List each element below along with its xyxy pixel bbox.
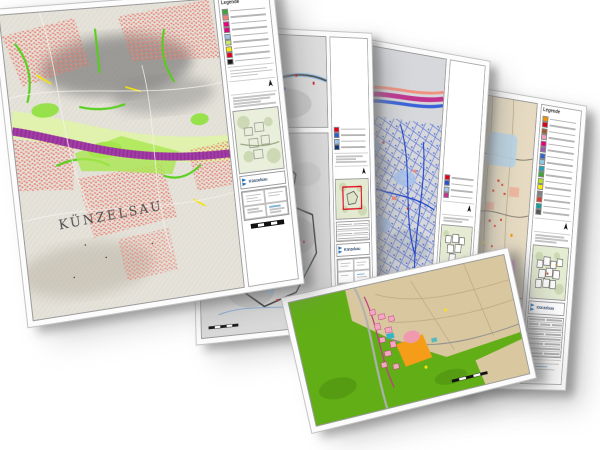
overview-sketch-map	[232, 106, 284, 174]
legend-item-label-line	[341, 135, 365, 137]
overview-location-graphic	[336, 179, 369, 219]
legend-item-label-line	[341, 129, 365, 130]
fine-print-lines	[442, 213, 474, 225]
legend-item	[334, 138, 368, 144]
logo-label: Künzelsau	[344, 247, 360, 253]
legend-color-chip	[334, 133, 340, 139]
north-arrow	[335, 165, 369, 177]
kuenzelsau-logo-icon	[241, 177, 247, 187]
legend-item	[334, 144, 368, 150]
kuenzelsau-logo-icon	[529, 302, 535, 312]
map-sheet-city-plan-kuenzelsau: KÜNZELSAU Legende	[0, 0, 305, 328]
title-block-table	[336, 220, 370, 242]
legend-item-label-line	[452, 177, 474, 181]
city-plan-map: KÜNZELSAU	[0, 0, 245, 321]
legend-blank-area	[445, 63, 483, 176]
legend-items	[535, 115, 579, 219]
north-arrow-icon	[361, 167, 366, 175]
legend-color-chip	[535, 209, 541, 215]
title-block-grid	[241, 186, 290, 222]
north-arrow-icon	[467, 205, 472, 214]
title-block-logo-row: Künzelsau	[336, 242, 370, 257]
legend-items	[443, 173, 476, 201]
legend-blank-area	[332, 39, 368, 124]
legend-color-chip	[334, 145, 340, 151]
overview-location-map	[335, 178, 369, 220]
legend-color-chip	[334, 127, 340, 133]
map-sheets-scene: Legende	[0, 0, 600, 450]
legend-color-chip	[227, 58, 234, 64]
legend-item	[334, 132, 368, 138]
logo-label: Künzelsau	[536, 305, 554, 311]
city-plan-graphic: KÜNZELSAU	[0, 0, 244, 320]
legend-color-chip	[443, 192, 449, 198]
legend-item-label-line	[451, 183, 473, 187]
north-arrow-icon	[267, 78, 273, 87]
legend-items	[334, 126, 368, 151]
north-arrow	[442, 200, 474, 214]
fine-print-lines	[334, 152, 368, 164]
scale-bar	[250, 219, 284, 228]
legend-color-chip	[334, 139, 340, 145]
title-block-logo-row: Künzelsau	[528, 300, 565, 316]
north-arrow-icon	[563, 222, 569, 231]
kuenzelsau-logo-icon	[338, 246, 343, 256]
legend-item-label-line	[341, 146, 365, 148]
overview-parcel-map	[529, 244, 569, 301]
legend-item-label-line	[450, 195, 472, 199]
overview-parcels-graphic	[530, 245, 569, 300]
fine-print-lines	[533, 230, 570, 246]
legend-items	[221, 4, 273, 65]
overview-sketch-graphic	[233, 107, 283, 173]
legend-item-label-line	[543, 212, 569, 216]
legend-item-label-line	[235, 57, 270, 62]
legend-item-label-line	[451, 189, 473, 193]
legend-item	[334, 127, 368, 133]
legend-item-label-line	[341, 141, 365, 143]
logo-label: Künzelsau	[249, 177, 268, 184]
north-arrow	[534, 217, 571, 232]
